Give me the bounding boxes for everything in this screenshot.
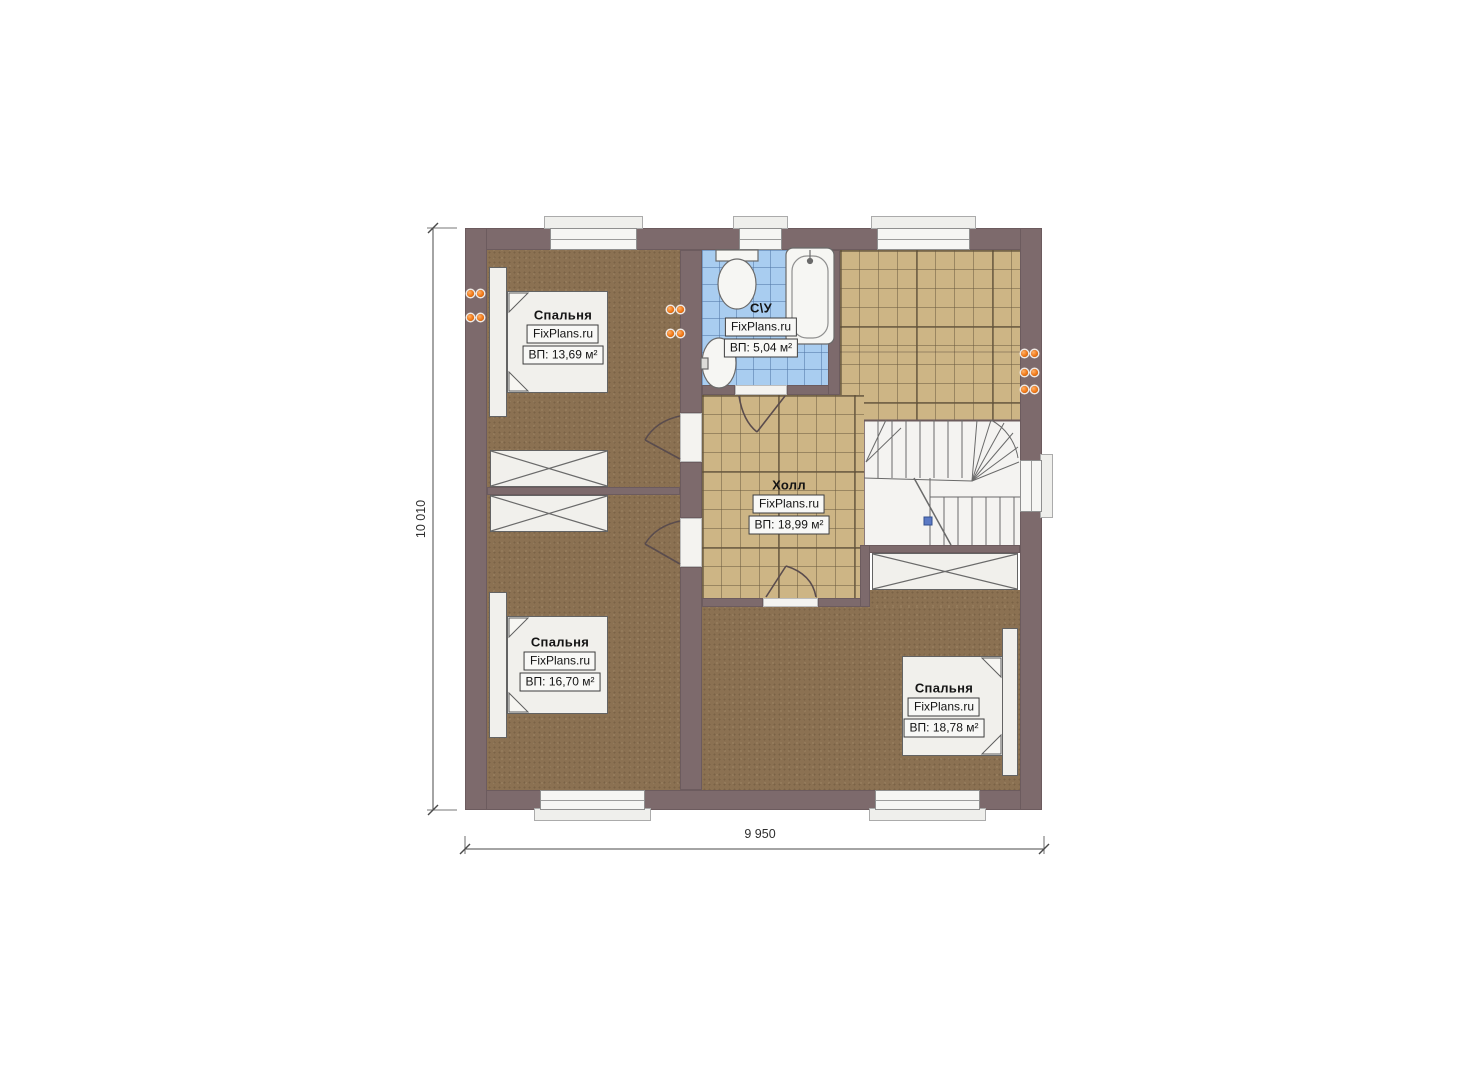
room-area: ВП: 18,78 м²: [904, 719, 985, 738]
nightstand: [489, 267, 507, 417]
window-top-bathroom: [739, 228, 782, 250]
window-top-left: [550, 228, 637, 250]
room-title: Спальня: [520, 635, 601, 650]
nightstand: [1002, 628, 1018, 776]
wall-partition-left-bedrooms: [487, 487, 680, 495]
socket-icon: [467, 290, 484, 297]
socket-icon: [1021, 386, 1038, 393]
dimension-width-label: 9 950: [744, 827, 775, 841]
room-label-bedroom-bottom-right: Спальня FixPlans.ru ВП: 18,78 м²: [904, 681, 985, 738]
wardrobe: [490, 495, 608, 532]
wardrobe: [872, 553, 1018, 590]
socket-icon: [467, 314, 484, 321]
socket-icon: [667, 306, 684, 313]
floor-bedroom-bottom-right-strip: [870, 590, 1020, 607]
room-title: Холл: [749, 478, 830, 493]
room-area: ВП: 18,99 м²: [749, 516, 830, 535]
room-label-bedroom-top-left: Спальня FixPlans.ru ВП: 13,69 м²: [523, 308, 604, 365]
door-opening-bedroom-bottom-right: [763, 598, 818, 607]
room-brand: FixPlans.ru: [725, 318, 797, 337]
wall-interior-vertical-middle: [680, 462, 702, 518]
room-title: Спальня: [904, 681, 985, 696]
room-label-bedroom-bottom-left: Спальня FixPlans.ru ВП: 16,70 м²: [520, 635, 601, 692]
door-opening-bedroom-top-left: [680, 413, 702, 462]
room-title: С\У: [724, 301, 798, 316]
wall-exterior-right: [1020, 228, 1042, 810]
room-label-bathroom: С\У FixPlans.ru ВП: 5,04 м²: [724, 301, 798, 358]
staircase-area: [864, 420, 1021, 545]
room-area: ВП: 5,04 м²: [724, 339, 798, 358]
wardrobe: [490, 450, 608, 487]
dimension-height-label: 10 010: [414, 500, 428, 538]
socket-icon: [1021, 350, 1038, 357]
window-top-right: [877, 228, 970, 250]
door-opening-bedroom-bottom-left: [680, 518, 702, 567]
nightstand: [489, 592, 507, 738]
window-right-stairs: [1020, 460, 1042, 512]
floor-plan-canvas: Спальня FixPlans.ru ВП: 13,69 м² С\У Fix…: [0, 0, 1474, 1080]
door-opening-bathroom: [735, 385, 787, 395]
room-brand: FixPlans.ru: [527, 325, 599, 344]
room-brand: FixPlans.ru: [753, 495, 825, 514]
room-brand: FixPlans.ru: [908, 698, 980, 717]
wall-interior-vertical-lower: [680, 567, 702, 790]
wall-stub-vertical: [860, 545, 870, 607]
room-label-hall: Холл FixPlans.ru ВП: 18,99 м²: [749, 478, 830, 535]
room-title: Спальня: [523, 308, 604, 323]
room-area: ВП: 13,69 м²: [523, 346, 604, 365]
wall-hall-bottom-left: [702, 598, 763, 607]
window-bottom-right: [875, 790, 980, 810]
socket-icon: [667, 330, 684, 337]
socket-icon: [1021, 369, 1038, 376]
wall-below-stairs: [862, 545, 1020, 553]
wall-bathroom-bottom-left: [702, 385, 735, 395]
window-bottom-left: [540, 790, 645, 810]
wall-bathroom-right: [828, 250, 840, 395]
floor-hall-top: [840, 250, 1020, 420]
room-brand: FixPlans.ru: [524, 652, 596, 671]
room-area: ВП: 16,70 м²: [520, 673, 601, 692]
